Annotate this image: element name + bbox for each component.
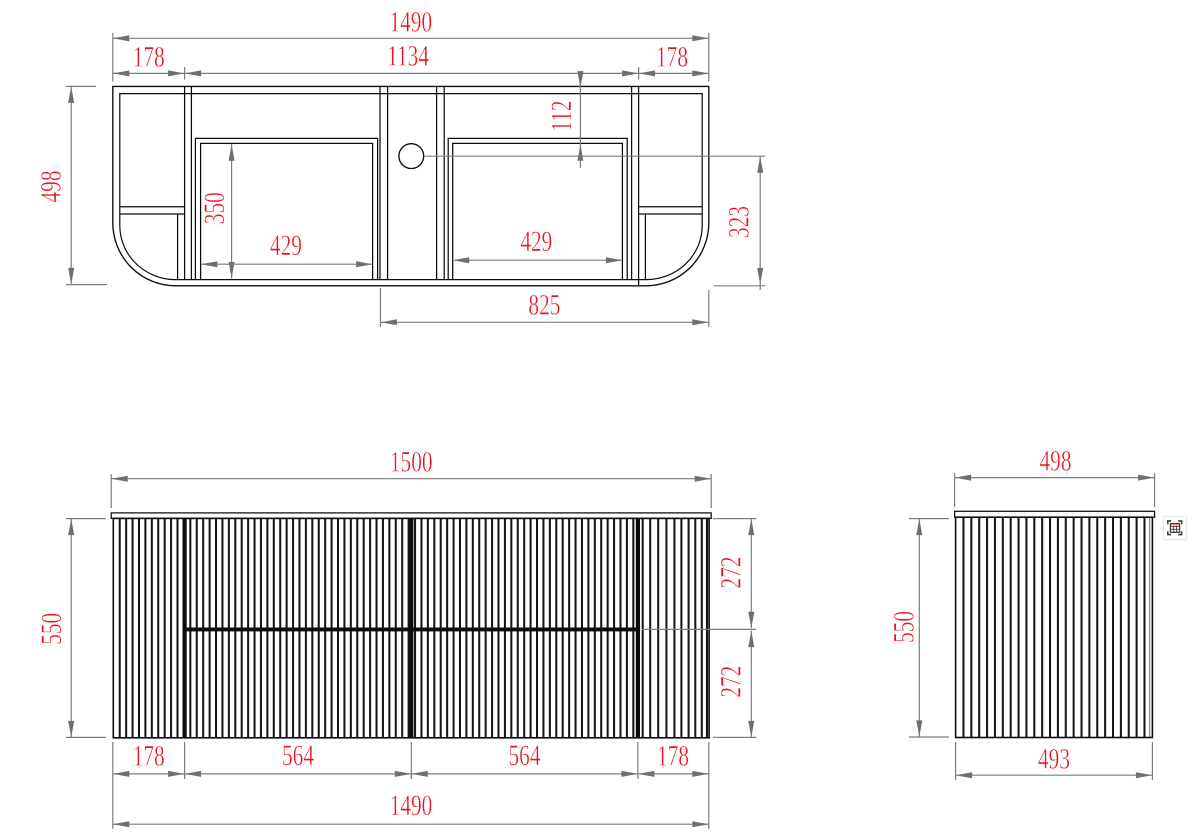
svg-text:1490: 1490 — [390, 5, 433, 38]
svg-text:178: 178 — [656, 40, 688, 73]
svg-text:493: 493 — [1038, 742, 1070, 775]
svg-text:1134: 1134 — [387, 39, 429, 72]
svg-text:178: 178 — [133, 40, 165, 73]
svg-text:178: 178 — [657, 739, 689, 772]
svg-text:1500: 1500 — [390, 445, 433, 478]
svg-text:178: 178 — [133, 739, 165, 772]
svg-text:498: 498 — [1040, 444, 1072, 477]
svg-text:272: 272 — [714, 557, 747, 589]
svg-text:323: 323 — [722, 206, 755, 238]
svg-text:550: 550 — [887, 611, 920, 643]
svg-text:498: 498 — [34, 171, 67, 203]
svg-text:564: 564 — [509, 738, 541, 771]
svg-text:825: 825 — [528, 288, 560, 321]
svg-text:272: 272 — [714, 666, 747, 698]
svg-text:1490: 1490 — [390, 789, 433, 822]
svg-text:350: 350 — [197, 192, 230, 224]
svg-text:429: 429 — [270, 229, 302, 262]
svg-text:564: 564 — [282, 738, 314, 771]
svg-text:550: 550 — [35, 613, 68, 645]
svg-text:112: 112 — [544, 100, 577, 131]
svg-text:429: 429 — [520, 225, 552, 258]
